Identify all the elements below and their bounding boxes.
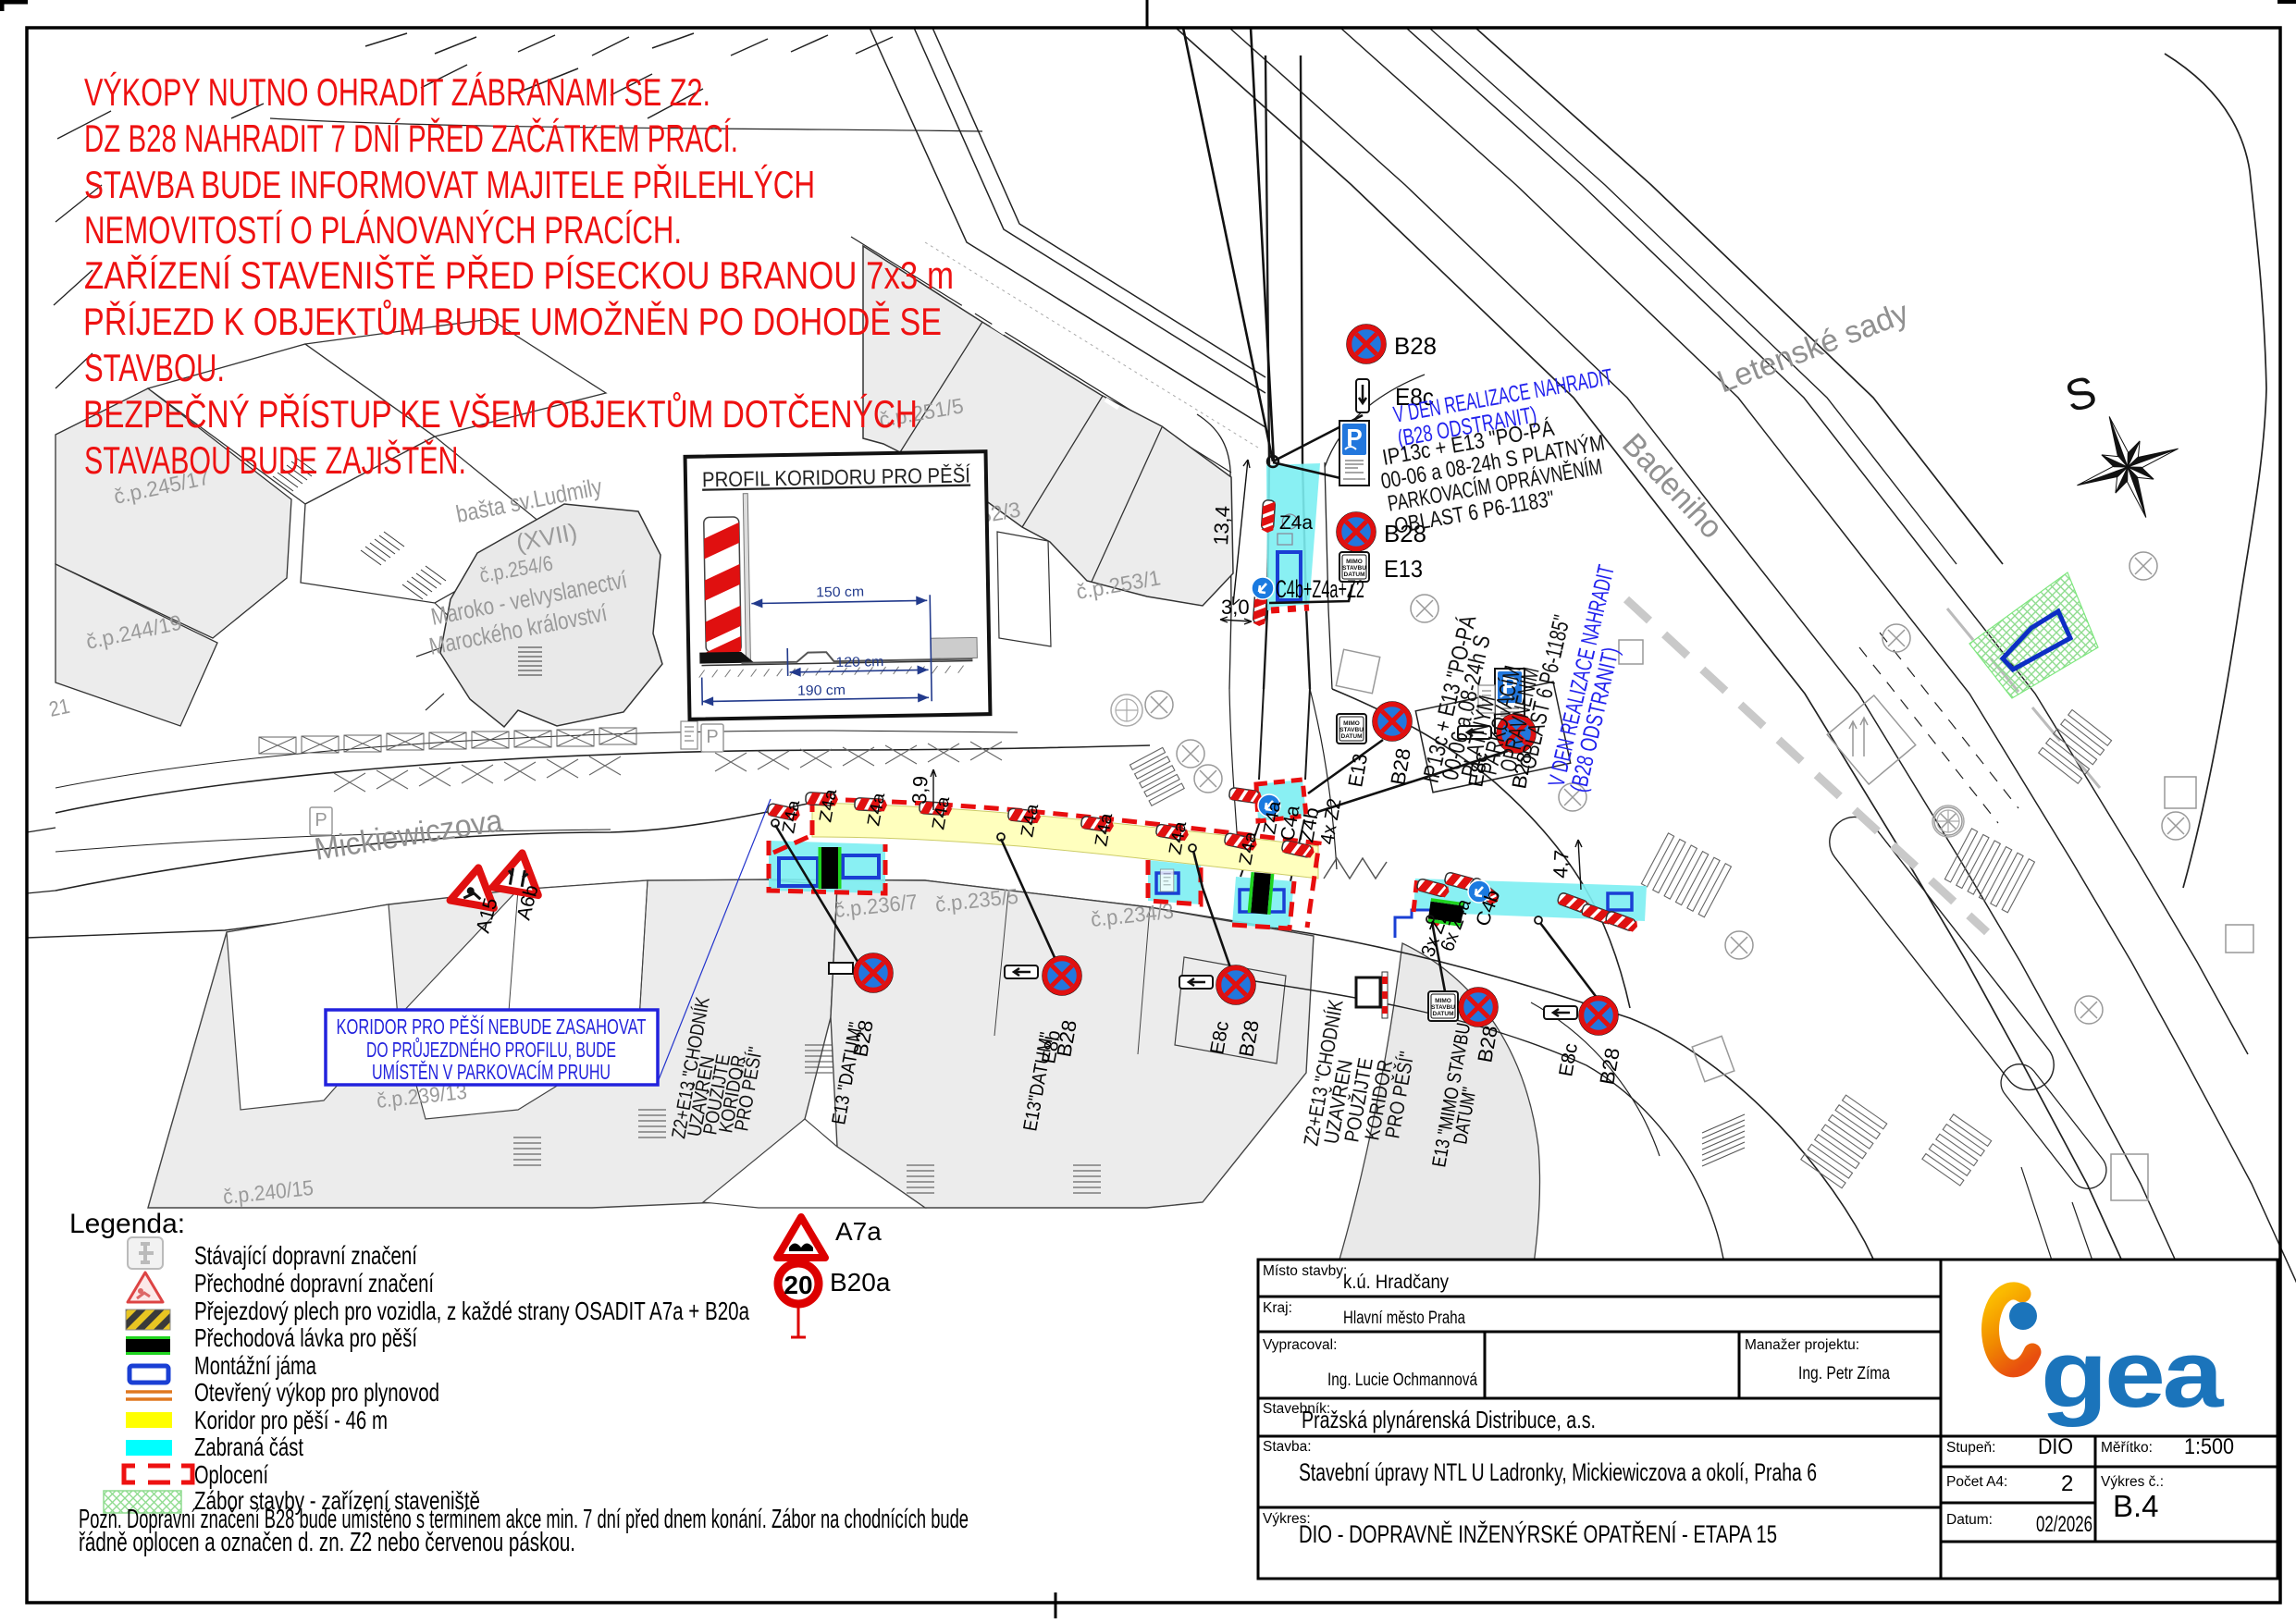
svg-text:DO PRŮJEZDNÉHO PROFILU, BUDE: DO PRŮJEZDNÉHO PROFILU, BUDE bbox=[366, 1036, 616, 1062]
svg-text:Kraj:: Kraj: bbox=[1263, 1300, 1292, 1316]
svg-text:DIO - DOPRAVNĚ INŽENÝRSKÉ OPAT: DIO - DOPRAVNĚ INŽENÝRSKÉ OPATŘENÍ - ETA… bbox=[1299, 1519, 1777, 1548]
svg-text:Vypracoval:: Vypracoval: bbox=[1263, 1337, 1337, 1353]
svg-text:DIO: DIO bbox=[2038, 1434, 2073, 1459]
svg-text:Koridor pro pěší - 46 m: Koridor pro pěší - 46 m bbox=[194, 1406, 388, 1434]
svg-text:NEMOVITOSTÍ O PLÁNOVANÝCH PRAC: NEMOVITOSTÍ O PLÁNOVANÝCH PRACÍCH. bbox=[84, 208, 682, 252]
svg-text:Z4a: Z4a bbox=[1279, 512, 1313, 534]
svg-text:20: 20 bbox=[784, 1271, 812, 1299]
svg-text:3,9: 3,9 bbox=[907, 775, 932, 805]
svg-text:STAVBOU.: STAVBOU. bbox=[84, 346, 225, 389]
svg-text:Přejezdový plech pro vozidla,: Přejezdový plech pro vozidla, z každé st… bbox=[194, 1297, 749, 1325]
svg-text:VÝKOPY NUTNO OHRADIT ZÁBRANAMI: VÝKOPY NUTNO OHRADIT ZÁBRANAMI SE Z2. bbox=[84, 70, 710, 114]
svg-text:ZAŘÍZENÍ STAVENIŠTĚ PŘED PÍSEC: ZAŘÍZENÍ STAVENIŠTĚ PŘED PÍSECKOU BRANOU… bbox=[84, 253, 954, 297]
svg-text:Montážní jáma: Montážní jáma bbox=[194, 1351, 316, 1380]
svg-text:Počet A4:: Počet A4: bbox=[1946, 1474, 2007, 1490]
svg-text:Manažer projektu:: Manažer projektu: bbox=[1745, 1337, 1859, 1353]
svg-text:B20a: B20a bbox=[830, 1268, 891, 1297]
svg-text:B28: B28 bbox=[1394, 332, 1437, 360]
svg-text:Stavební úpravy NTL U Ladronky: Stavební úpravy NTL U Ladronky, Mickiewi… bbox=[1299, 1458, 1817, 1486]
svg-text:190 cm: 190 cm bbox=[797, 682, 846, 699]
svg-text:4,7: 4,7 bbox=[1549, 849, 1574, 879]
svg-text:k.ú. Hradčany: k.ú. Hradčany bbox=[1343, 1272, 1449, 1293]
svg-text:Stavba:: Stavba: bbox=[1263, 1439, 1312, 1455]
svg-text:13,4: 13,4 bbox=[1209, 505, 1234, 546]
svg-text:Ing. Petr Zíma: Ing. Petr Zíma bbox=[1798, 1364, 1890, 1383]
svg-text:Datum:: Datum: bbox=[1946, 1512, 1993, 1528]
svg-text:150 cm: 150 cm bbox=[816, 584, 864, 600]
svg-text:BEZPEČNÝ PŘÍSTUP KE VŠEM OBJEK: BEZPEČNÝ PŘÍSTUP KE VŠEM OBJEKTŮM DOTČEN… bbox=[83, 390, 918, 436]
svg-text:STAVABOU BUDE ZAJIŠTĚN.: STAVABOU BUDE ZAJIŠTĚN. bbox=[84, 438, 466, 482]
svg-text:PŘÍJEZD K OBJEKTŮM BUDE UMOŽNĚ: PŘÍJEZD K OBJEKTŮM BUDE UMOŽNĚN PO DOHOD… bbox=[83, 298, 942, 343]
svg-text:02/2026: 02/2026 bbox=[2036, 1512, 2092, 1537]
svg-text:C4b+Z4a+Z2: C4b+Z4a+Z2 bbox=[1276, 575, 1364, 603]
svg-text:UMÍSTĚN V PARKOVACÍM PRUHU: UMÍSTĚN V PARKOVACÍM PRUHU bbox=[372, 1060, 611, 1084]
svg-text:Pražská plynárenská Distribuce: Pražská plynárenská Distribuce, a.s. bbox=[1302, 1406, 1596, 1433]
svg-text:A7a: A7a bbox=[835, 1217, 882, 1246]
svg-text:120 cm: 120 cm bbox=[835, 654, 883, 670]
svg-text:1:500: 1:500 bbox=[2184, 1434, 2234, 1459]
svg-text:3,0: 3,0 bbox=[1221, 596, 1250, 619]
svg-text:PROFIL KORIDORU PRO PĚŠÍ: PROFIL KORIDORU PRO PĚŠÍ bbox=[702, 461, 971, 491]
svg-text:Zabraná část: Zabraná část bbox=[194, 1432, 303, 1461]
svg-text:Oplocení: Oplocení bbox=[194, 1460, 268, 1489]
svg-text:Výkres č.:: Výkres č.: bbox=[2101, 1474, 2164, 1490]
svg-text:Otevřený výkop pro plynovod: Otevřený výkop pro plynovod bbox=[194, 1378, 439, 1407]
svg-text:gea: gea bbox=[2041, 1321, 2224, 1427]
svg-text:Hlavní město Praha: Hlavní město Praha bbox=[1343, 1309, 1465, 1328]
svg-text:Stávající dopravní značení: Stávající dopravní značení bbox=[194, 1241, 417, 1270]
svg-text:STAVBA BUDE INFORMOVAT MAJITEL: STAVBA BUDE INFORMOVAT MAJITELE PŘILEHLÝ… bbox=[84, 163, 815, 206]
svg-text:Ing. Lucie Ochmannová: Ing. Lucie Ochmannová bbox=[1327, 1371, 1477, 1390]
svg-text:2: 2 bbox=[2061, 1471, 2073, 1496]
svg-text:Legenda:: Legenda: bbox=[69, 1209, 185, 1239]
svg-text:Přechodová lávka pro pěší: Přechodová lávka pro pěší bbox=[194, 1323, 417, 1352]
svg-text:Místo stavby:: Místo stavby: bbox=[1263, 1263, 1347, 1279]
svg-text:E13: E13 bbox=[1384, 555, 1423, 583]
svg-text:B.4: B.4 bbox=[2113, 1489, 2159, 1523]
svg-text:Stupeň:: Stupeň: bbox=[1946, 1440, 1995, 1456]
svg-text:DZ B28 NAHRADIT 7 DNÍ PŘED ZAČ: DZ B28 NAHRADIT 7 DNÍ PŘED ZAČÁTKEM PRAC… bbox=[84, 117, 738, 160]
svg-text:KORIDOR PRO PĚŠÍ NEBUDE ZASAHO: KORIDOR PRO PĚŠÍ NEBUDE ZASAHOVAT bbox=[337, 1014, 647, 1039]
svg-text:Přechodné dopravní značení: Přechodné dopravní značení bbox=[194, 1269, 434, 1297]
svg-text:řádně oplocen a označen d. zn.: řádně oplocen a označen d. zn. Z2 nebo č… bbox=[79, 1528, 575, 1557]
svg-text:Měřítko:: Měřítko: bbox=[2101, 1440, 2153, 1456]
